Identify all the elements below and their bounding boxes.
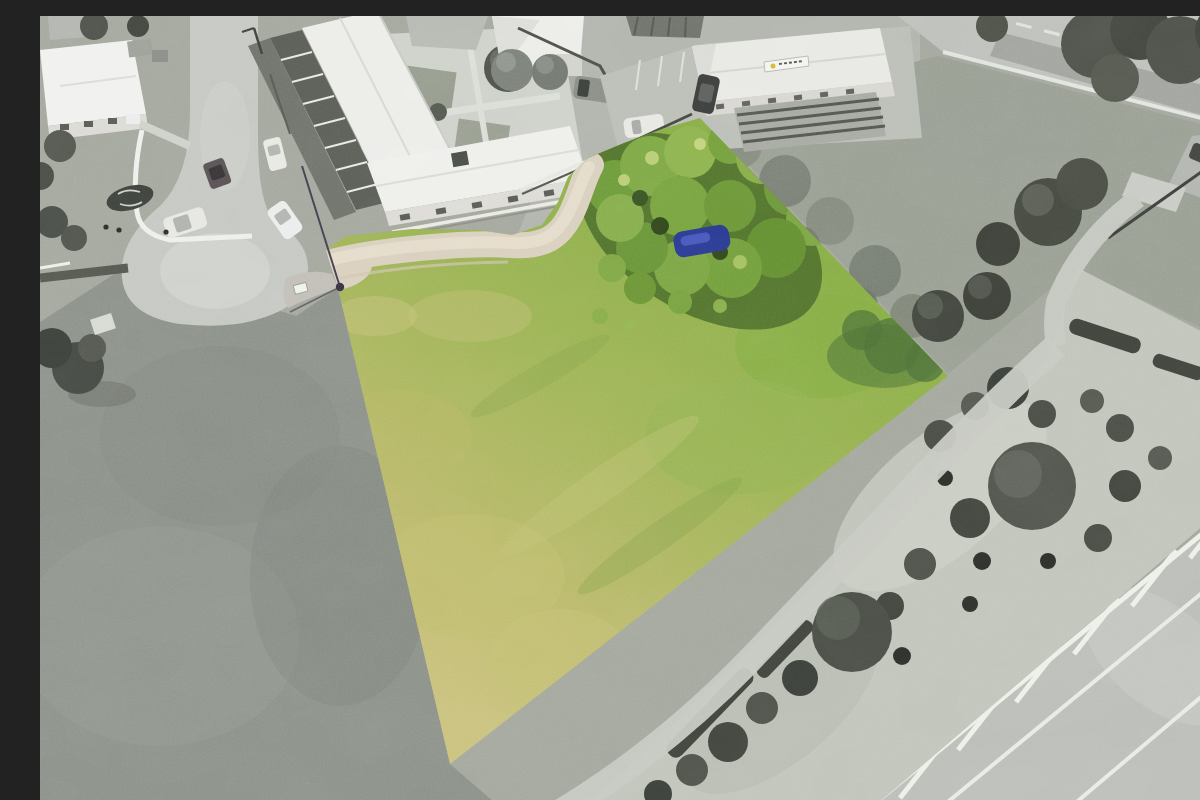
aerial-photo-canvas: Aerial drone photo of a vacant corner se… <box>40 16 1200 800</box>
aerial-photo: Aerial drone photo of a vacant corner se… <box>40 16 1200 800</box>
fine-grain-overlay <box>40 16 1200 800</box>
